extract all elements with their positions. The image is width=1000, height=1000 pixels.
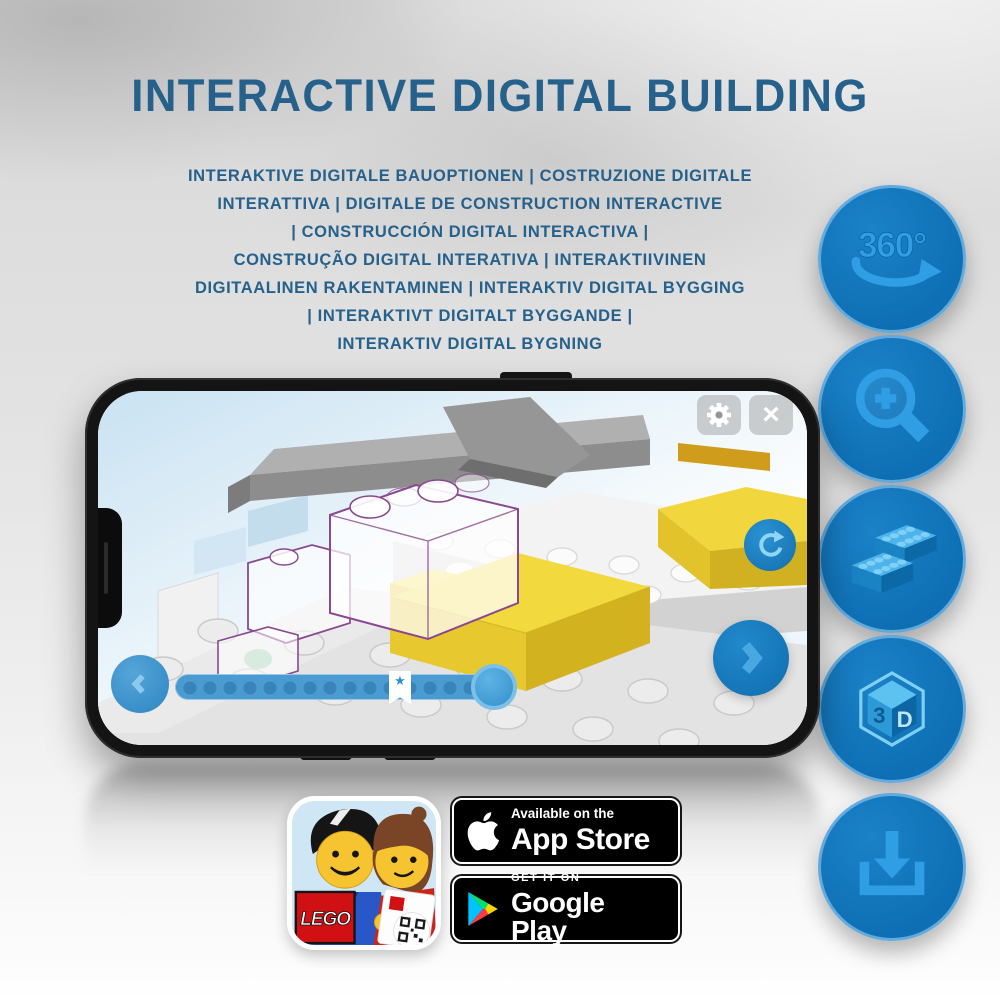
- google-play-icon: [466, 890, 500, 928]
- bricks-icon: [839, 506, 945, 612]
- close-icon: ×: [762, 398, 780, 432]
- 3d-cube-icon: 3 D: [839, 656, 945, 762]
- lego-minifigures-art: LEGO: [292, 801, 436, 945]
- svg-text:LEGO: LEGO: [300, 909, 351, 930]
- app-store-tagline: Available on the: [511, 807, 650, 821]
- subtitle-line: INTERAKTIVE DIGITALE BAUOPTIONEN | COSTR…: [105, 162, 835, 190]
- phone-notch: [98, 508, 122, 628]
- apple-icon: [466, 810, 500, 852]
- 360-rotate-icon: 360°: [839, 206, 945, 312]
- lego-app-icon[interactable]: LEGO: [287, 796, 441, 950]
- feature-3d-button[interactable]: 3 D: [818, 635, 966, 783]
- google-play-badge[interactable]: GET IT ON Google Play: [452, 876, 680, 942]
- subtitle-line: | CONSTRUCCIÓN DIGITAL INTERACTIVA |: [105, 218, 835, 246]
- settings-button[interactable]: [697, 395, 741, 435]
- app-store-badge[interactable]: Available on the App Store: [452, 798, 680, 864]
- feature-zoom-button[interactable]: [818, 335, 966, 483]
- rotate-view-button[interactable]: [744, 519, 796, 571]
- app-store-label: App Store: [511, 825, 650, 855]
- svg-text:360°: 360°: [858, 226, 926, 265]
- build-progress-bar[interactable]: ★: [175, 674, 515, 700]
- close-button[interactable]: ×: [749, 395, 793, 435]
- star-icon: ★: [394, 671, 406, 704]
- multilingual-subtitle: INTERAKTIVE DIGITALE BAUOPTIONEN | COSTR…: [105, 162, 835, 358]
- page-title: INTERACTIVE DIGITAL BUILDING: [15, 70, 985, 122]
- feature-360-button[interactable]: 360°: [818, 185, 966, 333]
- next-step-button[interactable]: [713, 620, 789, 696]
- gear-icon: [704, 400, 734, 430]
- google-play-label: Google Play: [511, 889, 666, 945]
- chevron-left-icon: [127, 671, 153, 697]
- phone: × ★: [85, 378, 820, 758]
- feature-download-button[interactable]: [818, 793, 966, 941]
- subtitle-line: | INTERAKTIVT DIGITALT BYGGANDE |: [105, 302, 835, 330]
- chevron-right-icon: [731, 636, 771, 680]
- subtitle-line: CONSTRUÇÃO DIGITAL INTERATIVA | INTERAKT…: [105, 246, 835, 274]
- google-play-tagline: GET IT ON: [511, 873, 666, 884]
- feature-bricks-button[interactable]: [818, 485, 966, 633]
- download-icon: [839, 814, 945, 920]
- subtitle-line: DIGITAALINEN RAKENTAMINEN | INTERAKTIV D…: [105, 274, 835, 302]
- rotate-icon: [753, 528, 787, 562]
- subtitle-line: INTERATTIVA | DIGITALE DE CONSTRUCTION I…: [105, 190, 835, 218]
- svg-text:D: D: [897, 707, 913, 732]
- marketing-page: INTERACTIVE DIGITAL BUILDING INTERAKTIVE…: [0, 0, 1000, 1000]
- svg-text:3: 3: [873, 703, 885, 728]
- phone-screen: × ★: [98, 391, 807, 745]
- subtitle-line: INTERAKTIV DIGITAL BYGNING: [105, 330, 835, 358]
- zoom-in-icon: [839, 356, 945, 462]
- progress-star-marker: ★: [389, 671, 411, 704]
- progress-slider-handle[interactable]: [471, 664, 517, 710]
- previous-step-button[interactable]: [111, 655, 169, 713]
